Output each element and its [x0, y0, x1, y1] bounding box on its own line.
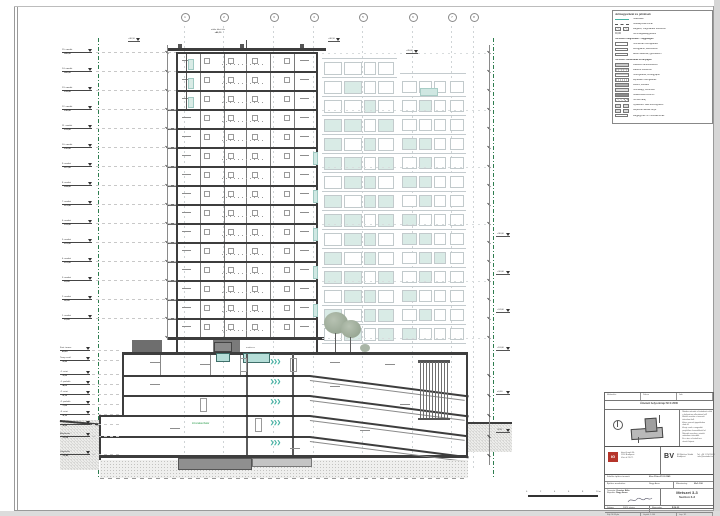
door-leaf — [240, 358, 247, 372]
legend-label: Hőszigetelés, kőzetgyapot — [633, 74, 712, 76]
dim-tick — [487, 414, 490, 417]
dim-annotation — [300, 269, 309, 270]
level-flag-icon — [506, 429, 510, 432]
elevation-window — [378, 214, 394, 227]
legend-label: Kavics, feltöltés — [633, 84, 712, 86]
rooftop-glass-box — [420, 88, 438, 96]
level-elevation: +18,00 — [64, 224, 71, 226]
elevation-marker-right: +30,00 — [496, 271, 512, 277]
level-name: 6. emelet — [62, 220, 71, 222]
roof-parapet — [300, 44, 304, 48]
partition-wall — [270, 54, 271, 71]
tower-floor-slab — [176, 71, 318, 73]
level-elevation: -4,05 — [62, 385, 67, 387]
elevation-window — [450, 309, 464, 321]
associate-value: Nagy Anna — [647, 482, 674, 488]
scalebar-label: 0 — [526, 491, 527, 493]
level-leader-line — [92, 454, 122, 455]
level-flag-icon — [88, 182, 92, 185]
podium-floor-slab — [122, 375, 310, 377]
level-flag-icon — [88, 296, 92, 299]
logo-text-line: info@bvstudio.hu — [697, 456, 713, 459]
elevation-window — [402, 138, 417, 150]
partition-wall — [200, 111, 201, 128]
elevation-window — [402, 195, 417, 207]
elevation-window — [378, 233, 394, 246]
podium-floor-slab — [101, 415, 310, 417]
fire-compartment-label: tűzszakaszhatár — [192, 423, 232, 426]
elevation-window — [344, 157, 362, 170]
roof-level-marker: +46,10 — [128, 38, 142, 44]
scalebar-segment — [577, 495, 584, 498]
dim-dots — [222, 273, 266, 274]
legend-rows: TelekhatárSzabályozási vonalMeglévő, meg… — [613, 16, 712, 118]
elevation-window — [378, 138, 394, 151]
dim-annotation — [182, 193, 191, 194]
fixture-box — [204, 191, 210, 197]
level-flag-icon — [336, 38, 340, 41]
fixture-box — [284, 305, 290, 311]
fixture-box — [284, 77, 290, 83]
level-leader-line — [92, 436, 122, 437]
elevation-window — [434, 233, 446, 245]
level-marker: 15. emelet+45,00 — [62, 49, 92, 56]
grid-bubble: 8 — [470, 13, 479, 22]
signature-scribble — [627, 496, 653, 504]
fixture-box — [284, 96, 290, 102]
ramp-direction-chevrons: ❯❯❯ — [270, 421, 286, 427]
elevation-window — [344, 252, 362, 265]
revision-cell: Jele — [677, 393, 713, 400]
elevation-floor-line — [322, 267, 466, 268]
dim-annotation — [182, 307, 191, 308]
legend-swatch-box — [615, 83, 631, 87]
bottom-cell: Lap: 1/1 — [677, 513, 713, 516]
graphic-scale-bar: 0246810 m — [528, 491, 608, 500]
elevation-window — [344, 176, 362, 189]
scalebar-label: 2 — [540, 491, 541, 493]
partition-wall — [224, 111, 225, 128]
legend-label: Meglévő, megmaradó szerkezet — [633, 28, 712, 30]
dim-annotation — [182, 155, 191, 156]
partition-wall — [294, 282, 295, 299]
dim-annotation — [200, 364, 210, 365]
level-marker: 13. emelet+39,00 — [62, 87, 92, 94]
level-marker: -3. parkoló-9,95 — [60, 421, 90, 428]
level-elevation: ±0,00 — [62, 351, 67, 353]
dim-tick — [487, 374, 490, 377]
level-elevation: +45,00 — [64, 53, 71, 55]
partition-wall — [224, 263, 225, 280]
level-marker: -3. szint-9,10 — [60, 411, 90, 418]
elevation-window — [402, 176, 417, 188]
level-marker: Alaplemez-11,60 — [60, 433, 90, 440]
podium-floor-slab — [122, 395, 310, 397]
dim-annotation — [150, 384, 160, 385]
partition-wall — [246, 149, 247, 166]
partition-wall — [246, 282, 247, 299]
elevation-floor-line — [322, 286, 466, 287]
legend-swatch-hlines — [615, 73, 631, 77]
fixture-box — [284, 172, 290, 178]
elevation-window — [378, 176, 394, 189]
penthouse-wall — [186, 54, 187, 71]
fixture-box — [204, 172, 210, 178]
roof-parapet — [240, 44, 244, 48]
sheet-border-left-inner — [17, 6, 18, 510]
dim-annotation — [300, 193, 309, 194]
column-cap — [291, 415, 295, 417]
level-marker: 14. emelet+42,00 — [62, 68, 92, 75]
dim-annotation — [150, 362, 160, 363]
legend-swatch-pair — [615, 104, 631, 108]
leader-dots — [322, 167, 490, 168]
grid-line — [184, 26, 185, 470]
elevation-window — [402, 119, 417, 131]
level-flag-icon — [86, 421, 90, 424]
podium-wall-left-upper — [122, 352, 124, 417]
partition-wall — [270, 244, 271, 261]
grid-bubble: 5 — [359, 13, 368, 22]
level-marker: 2. emelet+6,00 — [62, 296, 92, 303]
elevation-floor-line — [322, 96, 466, 97]
dim-annotation — [300, 79, 309, 80]
pool-label: medence — [246, 347, 266, 350]
partition-wall — [224, 54, 225, 71]
foundation-block-mid — [252, 458, 312, 467]
scalebar-segment — [556, 495, 563, 498]
level-flag-icon — [86, 401, 90, 404]
fixture-box — [284, 324, 290, 330]
partition-wall — [294, 168, 295, 185]
legend-label: Szálerősített esztrich — [633, 94, 712, 96]
tower-floor-slab — [176, 223, 318, 225]
level-flag-icon — [88, 220, 92, 223]
fixture-box — [204, 96, 210, 102]
elevation-window — [402, 252, 417, 264]
level-flag-icon — [506, 271, 510, 274]
level-leader-line — [92, 360, 122, 361]
elevation-window — [450, 252, 464, 264]
dim-annotation — [300, 250, 309, 251]
level-flag-icon — [88, 163, 92, 166]
site-flag-1 — [659, 415, 660, 423]
level-name: 5. emelet — [62, 239, 71, 241]
level-elevation: +39,00 — [64, 91, 71, 93]
elevation-marker-right: -3,20 — [496, 429, 512, 435]
legend-swatch-grid — [615, 68, 631, 72]
roof-note-line1: attika felső éle — [198, 29, 238, 31]
legend-swatch-pair — [615, 109, 631, 113]
dim-annotation — [300, 155, 309, 156]
grid-bubble: 4 — [310, 13, 319, 22]
elevation-window — [344, 290, 362, 303]
level-leader-line — [96, 185, 176, 186]
fixture-box — [204, 210, 210, 216]
fixture-box — [284, 286, 290, 292]
dim-annotation — [300, 60, 309, 61]
level-elevation: -7,00 — [62, 405, 67, 407]
level-name: Szigetelés — [60, 451, 70, 453]
partition-wall — [224, 320, 225, 337]
partition-wall — [246, 320, 247, 337]
dim-annotation — [330, 386, 340, 387]
scale-label: Méretarány: — [674, 482, 692, 488]
scalebar-label: 8 — [582, 491, 583, 493]
elevation-window — [364, 233, 376, 246]
partition-wall — [224, 244, 225, 261]
titleblock-notes: Minden méretet a kivitelezés előtta hely… — [680, 410, 713, 446]
level-flag-icon — [88, 258, 92, 261]
partition-wall — [200, 73, 201, 90]
elevation-window — [419, 195, 432, 207]
dim-dots — [222, 235, 266, 236]
dim-annotation — [300, 136, 309, 137]
partition-wall — [270, 111, 271, 128]
terrain-left — [60, 420, 99, 470]
fixture-box — [284, 115, 290, 121]
facade-glass-strip — [313, 190, 318, 203]
date-label: Dátum: — [605, 506, 621, 512]
scalebar-segment — [570, 495, 577, 498]
legend-swatch-boxw — [615, 114, 631, 118]
partition-wall — [246, 73, 247, 90]
dim-annotation — [182, 326, 191, 327]
elevation-floor-line — [322, 191, 466, 192]
level-marker: Terep csatl.-0,90 — [60, 357, 90, 364]
level-leader-line — [96, 242, 176, 243]
level-marker: 6. emelet+18,00 — [62, 220, 92, 227]
partition-wall — [294, 206, 295, 223]
fixture-box — [284, 210, 290, 216]
elevation-window — [419, 233, 432, 245]
elevation-window — [324, 290, 342, 303]
fixture-box — [204, 286, 210, 292]
site-flag-2 — [638, 437, 639, 443]
titleblock-bottom-strip: Fájl: M-33.plnLépték: 1:100Lap: 1/1 — [605, 513, 713, 516]
dim-dots — [222, 330, 266, 331]
ig-logo-text: Inter-Graph Kft.1134 BudapestVáci út 23-… — [621, 452, 635, 460]
level-elevation: +12,00 — [64, 262, 71, 264]
elevation-window — [378, 290, 394, 303]
roof-canopy-slab — [168, 48, 326, 51]
elevation-window — [378, 252, 394, 265]
legend-label: Termett talaj — [633, 99, 712, 101]
dim-dots — [222, 64, 266, 65]
title-block: MódosításDátumJele Átnézeti helyszínrajz… — [604, 392, 714, 509]
level-name: 2. emelet — [62, 296, 71, 298]
level-name: -3. parkoló — [60, 421, 70, 423]
column-cap — [245, 395, 249, 397]
tower-floor-slab — [176, 204, 318, 206]
elevation-window — [364, 309, 376, 322]
partition-wall — [200, 244, 201, 261]
logo-text-line: Váci út 23-27. — [621, 457, 635, 460]
level-name: -2. parkoló — [60, 401, 70, 403]
elevation-window — [324, 119, 342, 132]
elevation-window — [450, 233, 464, 245]
drawn-row: Rajzolta: Nagy Anna — [605, 492, 660, 495]
elevation-window — [378, 62, 394, 75]
column-cap — [245, 415, 249, 417]
level-elevation: +36,00 — [64, 110, 71, 112]
elevation-floor-line — [322, 210, 466, 211]
terrace-glass — [188, 59, 194, 70]
level-flag-icon — [88, 106, 92, 109]
elevation-floor-line — [322, 248, 466, 249]
partition-wall — [294, 301, 295, 318]
partition-wall — [200, 130, 201, 147]
fixture-box — [284, 229, 290, 235]
dim-dots — [222, 197, 266, 198]
level-leader-line — [96, 52, 176, 53]
level-flag-icon — [86, 433, 90, 436]
elevation-floor-line — [322, 134, 466, 135]
elevation-window — [324, 195, 342, 208]
partition-wall — [270, 206, 271, 223]
level-elevation: +3,00 — [64, 319, 70, 321]
elevation-window — [378, 271, 394, 284]
penthouse-wall — [186, 73, 187, 90]
level-flag-icon — [506, 309, 510, 312]
dim-annotation — [300, 231, 309, 232]
legend-row: Megjegyzés: ld. műszaki leírás — [613, 113, 712, 118]
level-flag-icon — [506, 347, 510, 350]
partition-wall — [200, 263, 201, 280]
partition-wall — [246, 187, 247, 204]
elevation-window — [364, 290, 376, 303]
terrace-glass — [188, 97, 194, 108]
partition-wall — [200, 149, 201, 166]
elevation-window — [419, 119, 432, 131]
elevation-window — [419, 290, 432, 302]
level-flag-icon — [506, 391, 510, 394]
north-arrow-needle — [617, 421, 618, 427]
elevation-window — [324, 100, 342, 113]
elevation-window — [364, 138, 376, 151]
partition-wall — [294, 111, 295, 128]
level-elevation: +30,00 — [64, 148, 71, 150]
level-leader-line — [96, 280, 176, 281]
level-flag-icon — [86, 347, 90, 350]
elevation-window — [402, 81, 417, 93]
drawing-sheet: 12345678❯❯❯❯❯❯❯❯❯❯❯❯❯❯❯tűzszakaszhatárme… — [0, 0, 720, 516]
scalebar-segment — [542, 495, 549, 498]
scalebar-segment — [535, 495, 542, 498]
number-label: Rajzszám: — [650, 506, 670, 512]
legend-swatch-outline — [615, 53, 631, 57]
roof-note-line2: +46,10 — [198, 32, 238, 34]
elevation-window — [324, 252, 342, 265]
level-marker: -1. parkoló-4,05 — [60, 381, 90, 388]
level-marker: Szigetelés-12,40 — [60, 451, 90, 458]
legend-label: Tervezett szerkezetek és anyagok — [615, 59, 695, 61]
partition-wall — [294, 320, 295, 337]
tower-floor-slab — [176, 261, 318, 263]
fixture-box — [204, 153, 210, 159]
grid-line — [313, 26, 314, 470]
dim-dots — [222, 292, 266, 293]
level-name: 8. emelet — [62, 182, 71, 184]
level-marker: 5. emelet+15,00 — [62, 239, 92, 246]
fixture-box — [204, 324, 210, 330]
partition-wall — [294, 130, 295, 147]
level-elevation: +33,00 — [64, 129, 71, 131]
level-flag-icon — [88, 125, 92, 128]
dim-tick — [487, 394, 490, 397]
elevation-marker-right: +36,00 — [496, 233, 512, 239]
titleblock-header: Átnézeti helyszínrajz M=1:2000 — [605, 401, 713, 410]
level-elevation: -3,20 — [62, 375, 67, 377]
level-leader-line — [92, 384, 122, 385]
level-elevation: +9,00 — [64, 281, 70, 283]
note-line: részét képezi. — [682, 441, 712, 444]
level-elevation: +42,00 — [64, 72, 71, 74]
fixture-box — [204, 115, 210, 121]
dim-string-right — [489, 45, 490, 465]
dim-dots — [222, 102, 266, 103]
grid-line — [473, 26, 474, 470]
number-value: É-M-33 — [670, 506, 679, 512]
partition-wall — [224, 92, 225, 109]
dim-annotation — [182, 117, 191, 118]
level-leader-line — [92, 414, 122, 415]
tower-floor-slab — [176, 318, 318, 320]
level-flag-icon — [86, 371, 90, 374]
partition-wall — [294, 149, 295, 166]
level-flag-icon — [88, 68, 92, 71]
dim-dots — [222, 83, 266, 84]
elevation-window — [419, 252, 432, 264]
roof-parapet — [178, 44, 182, 48]
elevation-window — [364, 328, 376, 341]
parking-ramp-underline — [310, 420, 465, 441]
elevation-window — [450, 195, 464, 207]
elevation-window — [364, 100, 376, 113]
logo-cell-right: BV BV Építész StúdióBudapest Tel: +36 1 … — [661, 447, 713, 474]
fixture-box — [204, 248, 210, 254]
partition-wall — [294, 54, 295, 71]
elevation-window — [434, 119, 446, 131]
legend-title: Jelmagyarázat és jelölések — [615, 13, 712, 16]
foundation-block-dark — [178, 458, 252, 470]
elevation-window — [344, 233, 362, 246]
elevation-floor-line — [322, 172, 466, 173]
partition-wall — [246, 130, 247, 147]
partition-wall — [294, 225, 295, 242]
legend-label: Szabályozási vonal — [633, 23, 712, 25]
roof-level-marker: +46,10 — [328, 38, 342, 44]
partition-wall — [200, 54, 201, 71]
level-elevation: -9,10 — [62, 415, 67, 417]
level-leader-line — [92, 374, 122, 375]
legend-swatch-box — [615, 63, 631, 67]
sheet-edge-right — [714, 0, 720, 516]
level-marker: 1. emelet+3,00 — [62, 315, 92, 322]
fixture-box — [284, 58, 290, 64]
leader-dots — [322, 110, 490, 111]
legend-label: Szintmagasság-jelölés — [633, 33, 712, 35]
level-name: 1. emelet — [62, 315, 71, 317]
dim-dots — [222, 254, 266, 255]
logo-cell-left: IG Inter-Graph Kft.1134 BudapestVáci út … — [605, 447, 661, 474]
elevation-floor-line — [322, 115, 466, 116]
level-flag-icon — [86, 411, 90, 414]
facade-glass-strip — [313, 266, 318, 279]
partition-wall — [200, 206, 201, 223]
level-flag-icon — [88, 239, 92, 242]
tree-trunk — [350, 337, 351, 352]
